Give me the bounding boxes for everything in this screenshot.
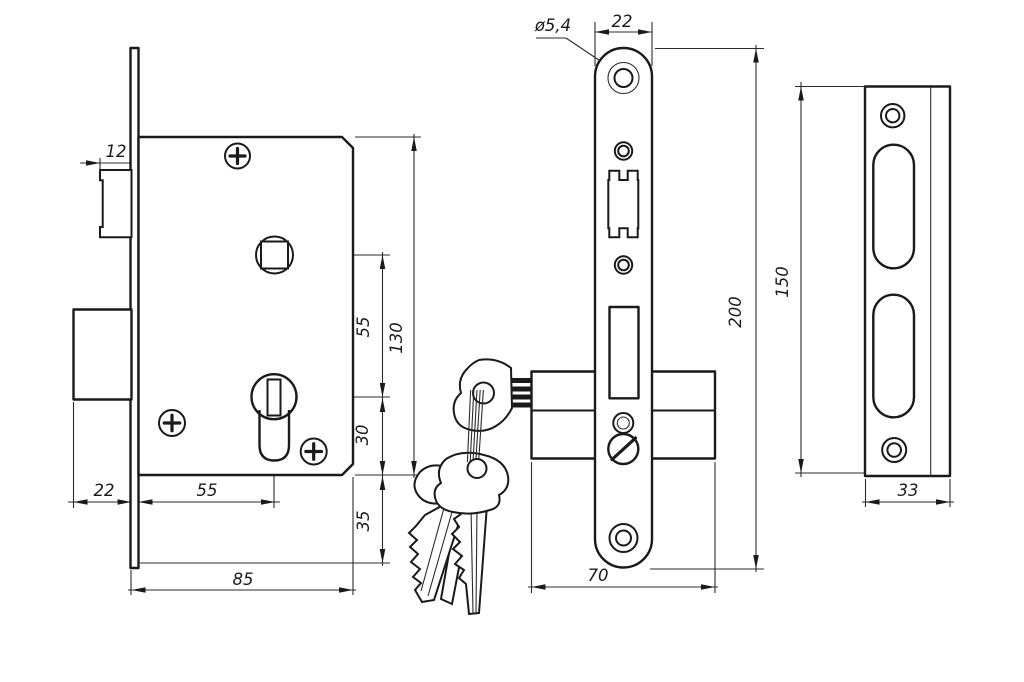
keyway-slot (268, 380, 281, 416)
strike-view: 150 33 (773, 82, 954, 507)
dim-label-70: 70 (588, 566, 609, 585)
arrowhead (753, 555, 759, 569)
arrowhead (139, 499, 153, 504)
latch-opening (608, 171, 638, 238)
dim-label-width-22: 22 (612, 12, 633, 31)
arrowhead (411, 137, 417, 151)
dim-label-150: 150 (773, 266, 792, 298)
dim-label-55: 55 (354, 317, 373, 338)
arrowhead (132, 587, 146, 592)
dim-label-throw-22: 22 (94, 481, 115, 500)
arrowhead (74, 499, 88, 504)
lock-drawing-svg: 12 22 55 85 55 130 30 35 (0, 0, 1024, 682)
arrowhead (380, 476, 386, 490)
dim-label-backset-55: 55 (197, 481, 218, 500)
dim-label-latch-12: 12 (106, 142, 127, 161)
arrowhead (701, 584, 715, 589)
front-view: ø5,4 22 200 70 (409, 12, 764, 614)
latch-bolt (100, 170, 132, 237)
arrowhead (532, 584, 546, 589)
arrowhead (866, 499, 880, 504)
screw-right (301, 439, 327, 465)
keys-bundle (409, 359, 532, 614)
arrowhead (798, 459, 804, 473)
deadbolt (74, 310, 132, 400)
deadbolt-opening (610, 307, 639, 398)
dim-label-dia-54: ø5,4 (534, 16, 571, 35)
arrowhead (380, 383, 386, 397)
key-ring (468, 459, 487, 478)
dim-label-130: 130 (387, 322, 406, 354)
arrowhead (380, 255, 386, 269)
arrowhead (86, 160, 100, 165)
arrowhead (798, 87, 804, 101)
arrowhead (339, 587, 353, 592)
arrowhead (638, 29, 652, 34)
drawing-sheet: 12 22 55 85 55 130 30 35 (0, 0, 1024, 682)
arrowhead (380, 461, 386, 475)
arrowhead (380, 398, 386, 412)
arrowhead (595, 29, 609, 34)
arrowhead (936, 499, 950, 504)
arrowhead (380, 549, 386, 563)
arrowhead (411, 461, 417, 475)
arrowhead (753, 49, 759, 63)
screw-left (159, 410, 185, 436)
side-view: 12 22 55 85 55 130 30 35 (68, 48, 421, 595)
arrowhead (261, 499, 275, 504)
dim-label-200: 200 (726, 296, 745, 328)
dim-label-33: 33 (898, 481, 919, 500)
dim-label-30: 30 (353, 425, 372, 446)
dim-label-35: 35 (354, 511, 373, 532)
strike-plate-outline (865, 87, 950, 477)
screw-top (225, 144, 250, 169)
dim-label-depth-85: 85 (233, 570, 254, 589)
